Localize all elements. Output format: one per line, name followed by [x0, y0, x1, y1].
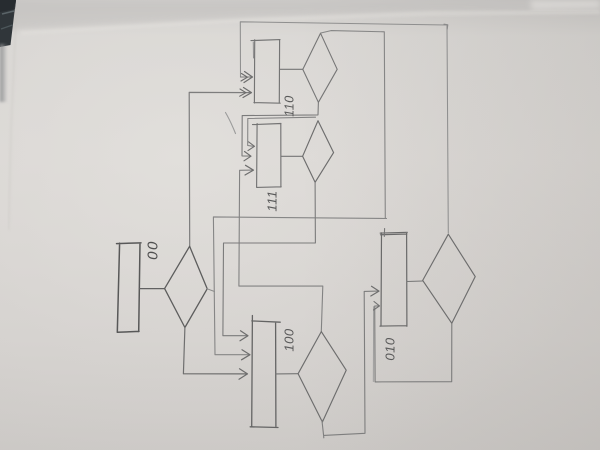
svg-text:100: 100 — [282, 328, 297, 351]
svg-text:010: 010 — [383, 337, 398, 360]
svg-text:111: 111 — [265, 190, 280, 211]
svg-text:110: 110 — [283, 95, 297, 116]
svg-text:00: 00 — [145, 240, 162, 260]
